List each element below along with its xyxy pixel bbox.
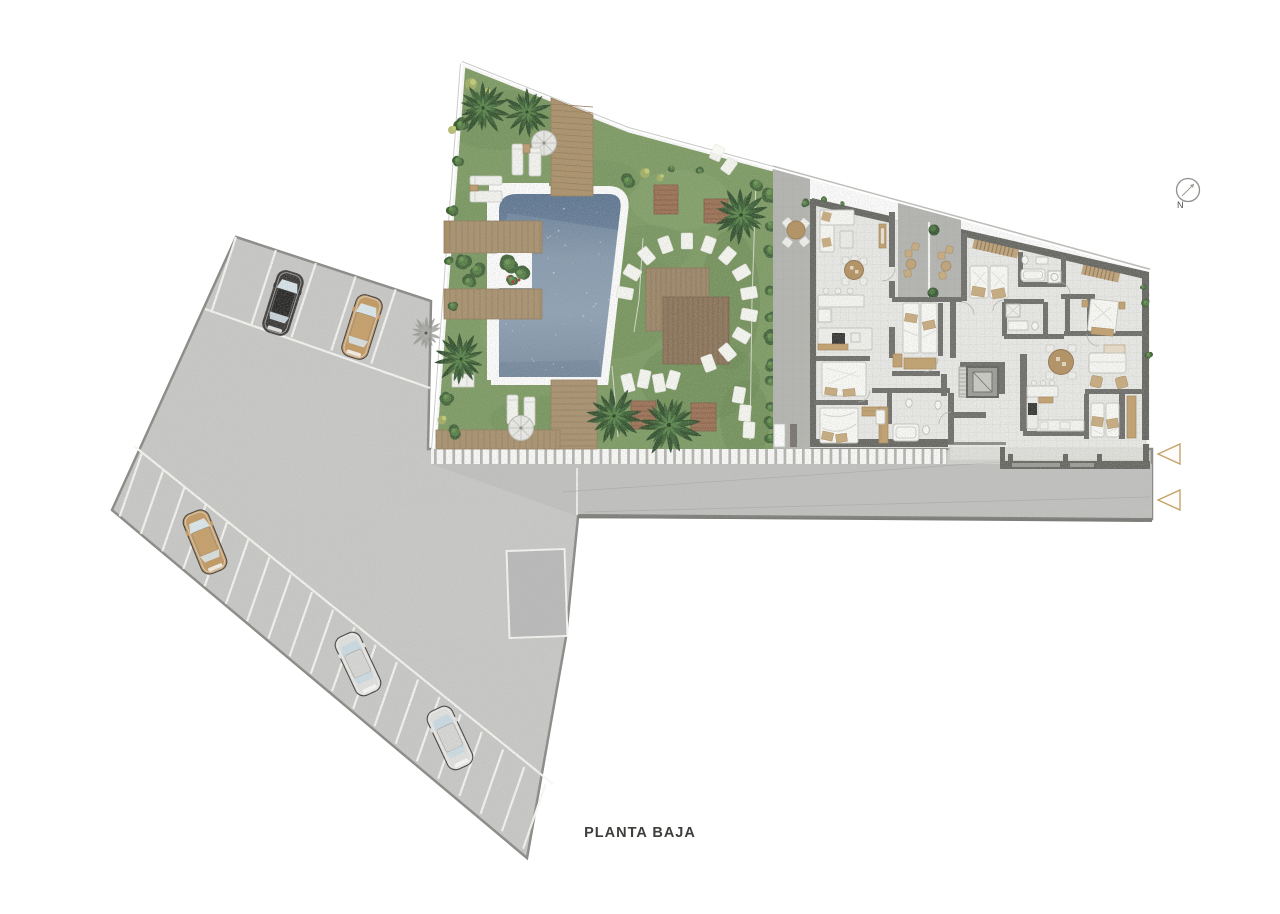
svg-text:PLANTA BAJA: PLANTA BAJA	[584, 825, 696, 841]
svg-text:N: N	[1177, 200, 1184, 210]
